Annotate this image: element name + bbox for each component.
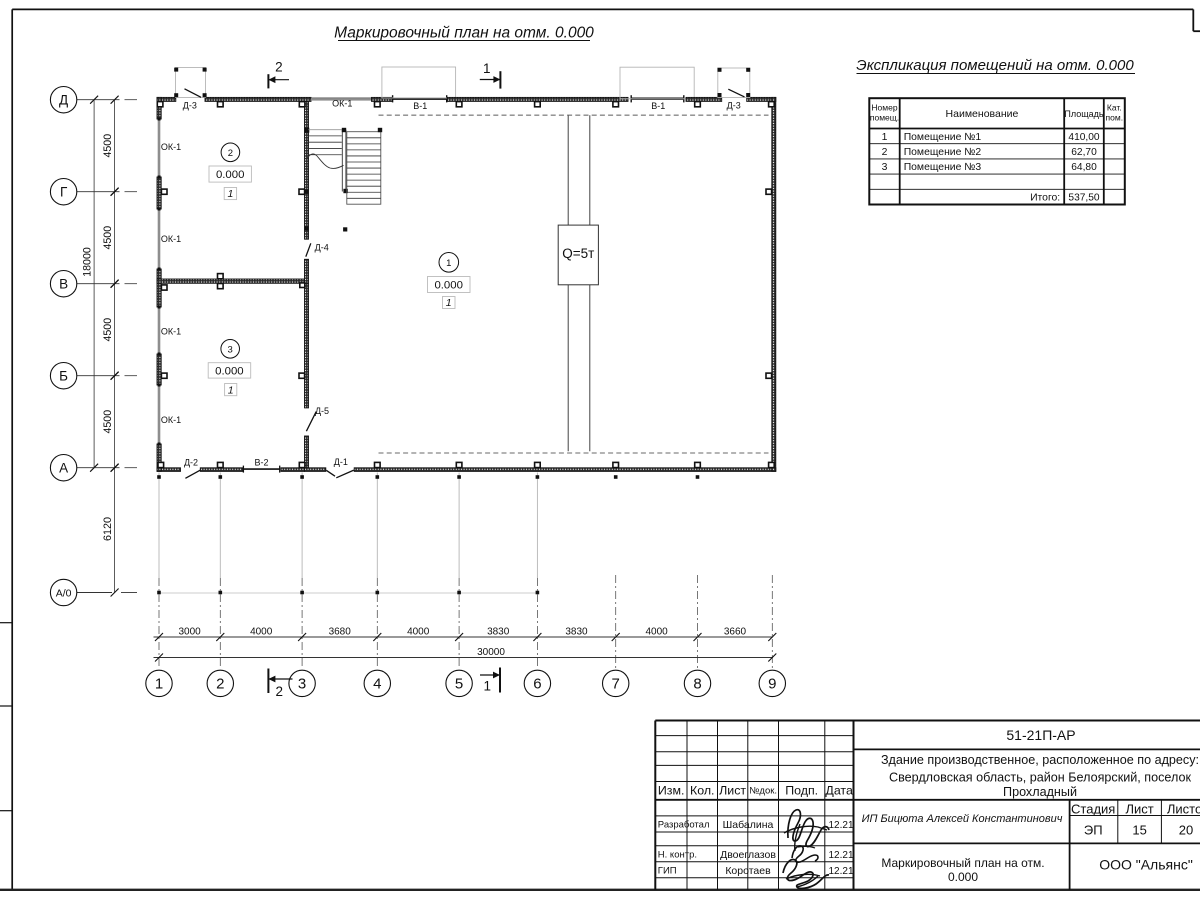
svg-text:Q=5т: Q=5т — [562, 246, 594, 261]
svg-text:Подп.: Подп. — [785, 784, 818, 798]
svg-text:1: 1 — [446, 258, 451, 269]
svg-text:Д-3: Д-3 — [183, 101, 197, 111]
svg-text:Шабалина: Шабалина — [723, 819, 774, 831]
svg-text:Экспликация помещений на отм.: Экспликация помещений на отм. 0.000 — [856, 57, 1134, 74]
svg-text:Г: Г — [60, 184, 68, 199]
svg-text:20: 20 — [1179, 822, 1193, 837]
svg-text:4500: 4500 — [102, 410, 114, 434]
svg-text:3830: 3830 — [565, 626, 588, 637]
svg-text:1: 1 — [882, 132, 888, 143]
svg-text:3660: 3660 — [724, 626, 747, 637]
svg-text:Кол.: Кол. — [690, 784, 715, 798]
svg-text:Свердловская область, район Бе: Свердловская область, район Белоярский, … — [889, 771, 1192, 785]
svg-text:6: 6 — [533, 676, 541, 693]
svg-text:ОК-1: ОК-1 — [161, 415, 181, 425]
svg-text:3000: 3000 — [178, 626, 201, 637]
svg-text:Н. контр.: Н. контр. — [658, 849, 697, 860]
svg-text:4: 4 — [373, 676, 381, 693]
svg-text:0.000: 0.000 — [434, 279, 463, 291]
svg-text:18000: 18000 — [81, 247, 93, 277]
svg-text:1: 1 — [155, 676, 163, 693]
svg-text:Листов: Листов — [1167, 802, 1200, 817]
svg-text:3: 3 — [882, 162, 888, 173]
svg-text:ЭП: ЭП — [1084, 822, 1103, 837]
svg-text:12.21: 12.21 — [828, 850, 853, 861]
svg-text:1: 1 — [483, 61, 491, 76]
svg-text:Маркировочный план на отм.: Маркировочный план на отм. — [881, 856, 1044, 870]
svg-text:62,70: 62,70 — [1071, 147, 1097, 158]
svg-text:4500: 4500 — [102, 318, 114, 342]
svg-text:А/0: А/0 — [56, 588, 72, 600]
svg-text:4000: 4000 — [645, 626, 668, 637]
svg-text:Прохладный: Прохладный — [1003, 785, 1077, 799]
svg-text:410,00: 410,00 — [1068, 132, 1099, 143]
svg-text:Д-2: Д-2 — [184, 458, 198, 468]
svg-text:Площадь: Площадь — [1064, 109, 1103, 119]
svg-text:64,80: 64,80 — [1071, 162, 1097, 173]
svg-text:Кат.: Кат. — [1107, 103, 1122, 113]
svg-text:6120: 6120 — [102, 517, 114, 541]
svg-text:5: 5 — [455, 676, 463, 693]
svg-text:Д: Д — [59, 92, 68, 107]
svg-text:Стадия: Стадия — [1071, 802, 1115, 817]
svg-text:0.000: 0.000 — [948, 870, 978, 884]
svg-text:4500: 4500 — [102, 226, 114, 250]
svg-text:В-1: В-1 — [651, 101, 665, 111]
svg-text:Маркировочный план на отм. 0.0: Маркировочный план на отм. 0.000 — [334, 25, 594, 42]
svg-text:Б: Б — [59, 368, 68, 383]
svg-text:2: 2 — [882, 147, 888, 158]
svg-text:А: А — [59, 460, 68, 475]
svg-text:ОК-1: ОК-1 — [332, 98, 352, 108]
svg-text:2: 2 — [276, 684, 284, 699]
svg-text:2: 2 — [228, 148, 233, 159]
svg-text:30000: 30000 — [477, 647, 505, 658]
svg-text:Помещение №2: Помещение №2 — [904, 147, 982, 158]
svg-text:15: 15 — [1132, 822, 1146, 837]
svg-text:ООО "Альянс": ООО "Альянс" — [1099, 857, 1193, 873]
svg-text:1: 1 — [227, 188, 233, 200]
svg-text:51-21П-АР: 51-21П-АР — [1006, 727, 1075, 743]
svg-text:Итого:: Итого: — [1030, 193, 1060, 204]
svg-text:Д-4: Д-4 — [315, 243, 329, 253]
svg-text:2: 2 — [216, 676, 224, 693]
svg-text:4500: 4500 — [102, 134, 114, 158]
svg-text:Здание производственное, распо: Здание производственное, расположенное п… — [881, 753, 1199, 767]
svg-text:Помещение №1: Помещение №1 — [904, 132, 982, 143]
svg-text:2: 2 — [275, 60, 283, 75]
svg-text:Дата: Дата — [825, 784, 853, 798]
svg-text:7: 7 — [612, 676, 620, 693]
svg-text:3830: 3830 — [487, 626, 510, 637]
svg-text:ОК-1: ОК-1 — [161, 326, 181, 336]
svg-text:ГИП: ГИП — [658, 865, 677, 876]
svg-text:В-1: В-1 — [413, 101, 427, 111]
svg-text:Д-3: Д-3 — [727, 101, 741, 111]
svg-text:1: 1 — [228, 384, 234, 396]
svg-text:ОК-1: ОК-1 — [161, 142, 181, 152]
svg-text:4000: 4000 — [250, 626, 273, 637]
svg-text:Д-1: Д-1 — [334, 457, 348, 467]
svg-text:№док.: №док. — [749, 786, 777, 797]
svg-text:Помещение №3: Помещение №3 — [904, 162, 982, 173]
svg-text:12.21: 12.21 — [828, 820, 853, 831]
svg-text:ИП Бицюта Алексей Константинов: ИП Бицюта Алексей Константинович — [862, 813, 1063, 825]
svg-text:3: 3 — [298, 676, 306, 693]
svg-text:пом.: пом. — [1106, 113, 1124, 123]
svg-text:ОК-1: ОК-1 — [161, 234, 181, 244]
svg-text:0.000: 0.000 — [216, 169, 245, 181]
svg-text:Разработал: Разработал — [658, 820, 710, 831]
svg-text:9: 9 — [768, 676, 776, 693]
svg-text:Д-5: Д-5 — [315, 406, 329, 416]
svg-text:3: 3 — [228, 345, 233, 356]
svg-text:Номер: Номер — [871, 103, 897, 113]
svg-text:1: 1 — [446, 297, 452, 309]
svg-text:В-2: В-2 — [254, 458, 268, 468]
svg-text:Наименование: Наименование — [946, 108, 1019, 120]
svg-text:помещ.: помещ. — [870, 113, 899, 123]
svg-text:1: 1 — [484, 679, 492, 694]
svg-text:Лист: Лист — [719, 784, 746, 798]
svg-text:Изм.: Изм. — [658, 784, 685, 798]
svg-text:Двоеглазов: Двоеглазов — [720, 849, 776, 861]
svg-text:0.000: 0.000 — [215, 365, 244, 377]
svg-text:537,50: 537,50 — [1068, 193, 1099, 204]
svg-text:3680: 3680 — [329, 626, 352, 637]
svg-text:4000: 4000 — [407, 626, 430, 637]
svg-text:Коротаев: Коротаев — [725, 865, 771, 877]
svg-text:12.21: 12.21 — [828, 866, 853, 877]
svg-text:В: В — [59, 276, 68, 291]
svg-text:8: 8 — [693, 676, 701, 693]
svg-text:Лист: Лист — [1125, 802, 1153, 817]
